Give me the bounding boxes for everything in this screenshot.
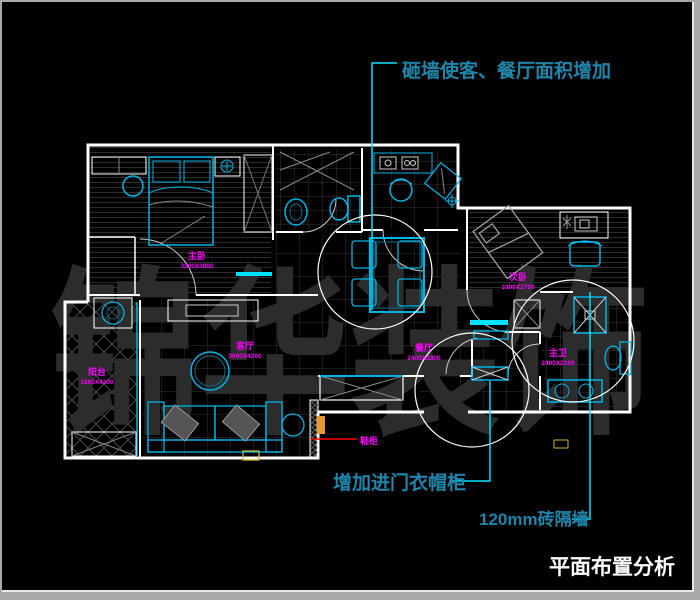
svg-text:3900X4200: 3900X4200 — [228, 353, 262, 360]
svg-text:3300X2700: 3300X2700 — [501, 284, 535, 291]
room-label-living: 客厅 — [235, 340, 254, 351]
hatched-wall-section — [310, 400, 318, 457]
annotation-brick-partition: 120mm砖隔墙 — [479, 509, 589, 529]
annotation-coat-cabinet: 增加进门衣帽柜 — [333, 471, 466, 494]
door-sill — [236, 272, 272, 276]
drawing-title: 平面布置分析 — [549, 555, 675, 579]
room-label-dining: 餐厅 — [414, 342, 433, 353]
svg-text:1500X4200: 1500X4200 — [80, 379, 114, 386]
svg-text:2400X3300: 2400X3300 — [407, 355, 441, 362]
annotation-shoe-cabinet: 鞋柜 — [360, 435, 378, 446]
room-label-second-bedroom: 次卧 — [509, 271, 527, 282]
cad-floor-plan-screenshot: 锦华装饰 — [0, 0, 700, 600]
floor-plan-drawing: 锦华装饰 — [0, 0, 700, 600]
room-label-balcony: 阳台 — [88, 366, 106, 377]
room-label-master-bedroom: 主卧 — [188, 250, 206, 261]
svg-text:3300X3900: 3300X3900 — [180, 263, 214, 270]
svg-text:2400X2100: 2400X2100 — [541, 360, 575, 367]
orange-marker — [317, 416, 325, 434]
room-label-bathroom: 主卫 — [549, 347, 567, 358]
door-sill — [470, 320, 508, 325]
annotation-demolish-wall: 砸墙使客、餐厅面积增加 — [402, 59, 611, 82]
